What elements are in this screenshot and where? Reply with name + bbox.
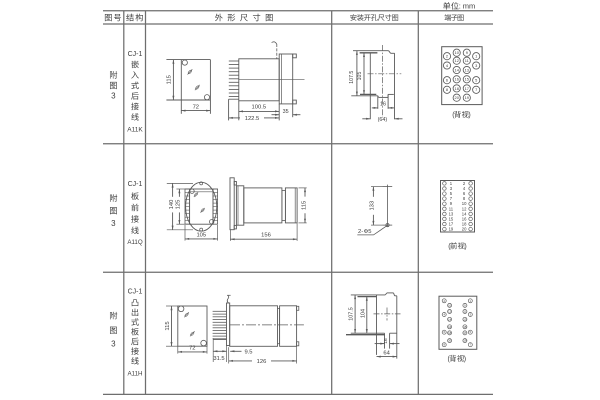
svg-text:17: 17	[463, 331, 466, 335]
svg-text:6: 6	[446, 78, 448, 83]
svg-text:104: 104	[360, 309, 366, 318]
svg-text:115: 115	[301, 201, 307, 210]
svg-text:126: 126	[257, 359, 267, 365]
svg-text:16: 16	[448, 325, 451, 329]
svg-text:9: 9	[466, 50, 468, 55]
svg-text:31.5: 31.5	[213, 356, 224, 362]
svg-text:15: 15	[463, 325, 466, 329]
svg-text:(64): (64)	[378, 117, 388, 123]
svg-text:8: 8	[446, 87, 448, 92]
svg-text:3: 3	[111, 339, 116, 348]
svg-text:35: 35	[283, 109, 289, 115]
svg-text:2-: 2-	[358, 229, 363, 235]
svg-text:CJ-1: CJ-1	[128, 289, 143, 296]
svg-text:mm: mm	[463, 2, 476, 11]
svg-text:Φ5: Φ5	[364, 229, 372, 235]
svg-text:12: 12	[448, 310, 451, 314]
svg-text:107.5: 107.5	[349, 307, 355, 321]
svg-text:): )	[464, 356, 466, 363]
svg-text:15: 15	[465, 77, 469, 82]
svg-text:105: 105	[196, 232, 206, 238]
svg-text:105: 105	[357, 72, 363, 81]
svg-text:125: 125	[176, 200, 182, 210]
svg-text:16: 16	[383, 338, 389, 344]
svg-text:20: 20	[462, 227, 467, 232]
svg-text:19: 19	[465, 95, 469, 100]
svg-text:5: 5	[475, 78, 477, 83]
svg-text:100.5: 100.5	[252, 105, 267, 111]
svg-text:64: 64	[383, 351, 390, 357]
svg-text:19: 19	[449, 227, 454, 232]
svg-text:72: 72	[193, 104, 199, 110]
svg-text:A11H: A11H	[127, 371, 142, 378]
svg-text:13: 13	[463, 317, 466, 321]
svg-text:18: 18	[448, 331, 451, 335]
svg-text:115: 115	[165, 321, 171, 330]
svg-text:19: 19	[463, 339, 466, 343]
svg-text:10: 10	[448, 303, 451, 307]
svg-text:14: 14	[448, 317, 451, 321]
svg-text:): )	[468, 112, 470, 119]
svg-text:11: 11	[465, 58, 469, 63]
svg-text:CJ-1: CJ-1	[128, 181, 143, 188]
svg-text:): )	[464, 243, 466, 250]
svg-text:3: 3	[475, 63, 477, 68]
svg-text:115: 115	[166, 75, 172, 84]
svg-text:16: 16	[455, 77, 459, 82]
svg-text:17: 17	[465, 86, 469, 91]
svg-text::: :	[459, 2, 461, 11]
svg-text:156: 156	[261, 233, 271, 239]
svg-text:122.5: 122.5	[245, 116, 260, 122]
svg-text:A11Q: A11Q	[127, 239, 143, 246]
svg-text:7: 7	[475, 87, 477, 92]
svg-text:107.5: 107.5	[349, 71, 355, 84]
svg-text:1: 1	[475, 54, 477, 59]
svg-text:CJ-1: CJ-1	[128, 51, 143, 58]
svg-text:18: 18	[455, 86, 459, 91]
svg-text:13: 13	[465, 67, 469, 72]
svg-text:133: 133	[370, 201, 376, 211]
svg-text:72: 72	[189, 346, 195, 352]
svg-text:16: 16	[380, 102, 386, 108]
svg-text:11: 11	[464, 310, 467, 314]
svg-text:9.5: 9.5	[244, 349, 252, 355]
svg-text:20: 20	[448, 339, 451, 343]
svg-text:A11K: A11K	[127, 126, 143, 133]
svg-text:3: 3	[111, 219, 116, 228]
svg-text:140: 140	[169, 200, 175, 210]
svg-text:2: 2	[446, 54, 448, 59]
svg-text:12: 12	[455, 58, 459, 63]
svg-text:3: 3	[111, 92, 116, 101]
